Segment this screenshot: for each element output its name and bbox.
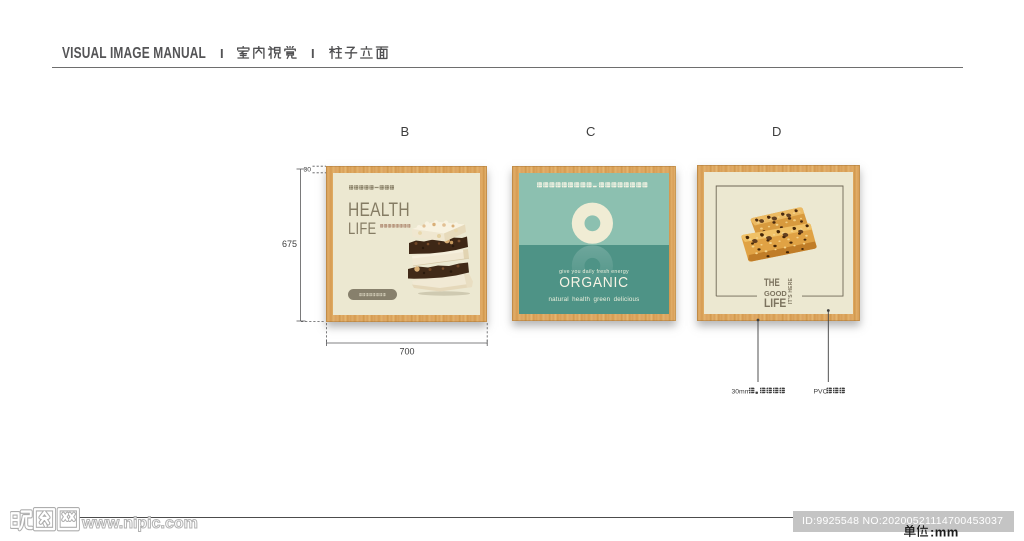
- svg-text:675: 675: [282, 239, 297, 249]
- svg-text::mm: :mm: [930, 525, 959, 539]
- svg-text:PVC: PVC: [814, 389, 828, 396]
- svg-text:700: 700: [400, 347, 415, 357]
- svg-text:30: 30: [304, 167, 312, 174]
- svg-text:30mm: 30mm: [732, 389, 751, 396]
